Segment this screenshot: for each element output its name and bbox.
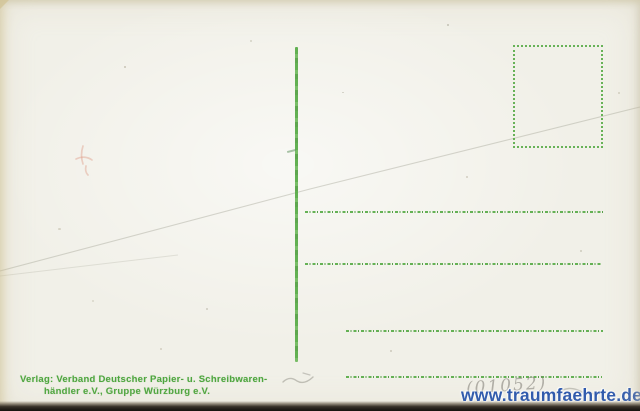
publisher-imprint-line2: händler e.V., Gruppe Würzburg e.V. bbox=[44, 386, 267, 398]
postcard-back: Verlag: Verband Deutscher Papier- u. Sch… bbox=[0, 0, 640, 411]
postcard-divider-line bbox=[295, 47, 298, 362]
red-smudge bbox=[76, 146, 92, 175]
pencil-dash bbox=[303, 373, 310, 375]
stamp-box bbox=[513, 45, 603, 148]
card-bottom-edge-shadow bbox=[0, 401, 640, 411]
pencil-squiggle bbox=[283, 377, 313, 382]
publisher-imprint: Verlag: Verband Deutscher Papier- u. Sch… bbox=[20, 374, 267, 397]
address-line-2 bbox=[305, 263, 602, 265]
corner-wear bbox=[0, 0, 9, 9]
publisher-imprint-line1: Verlag: Verband Deutscher Papier- u. Sch… bbox=[20, 374, 267, 386]
crease-echo bbox=[0, 255, 178, 276]
address-line-3 bbox=[346, 330, 603, 332]
address-line-1 bbox=[305, 211, 603, 213]
